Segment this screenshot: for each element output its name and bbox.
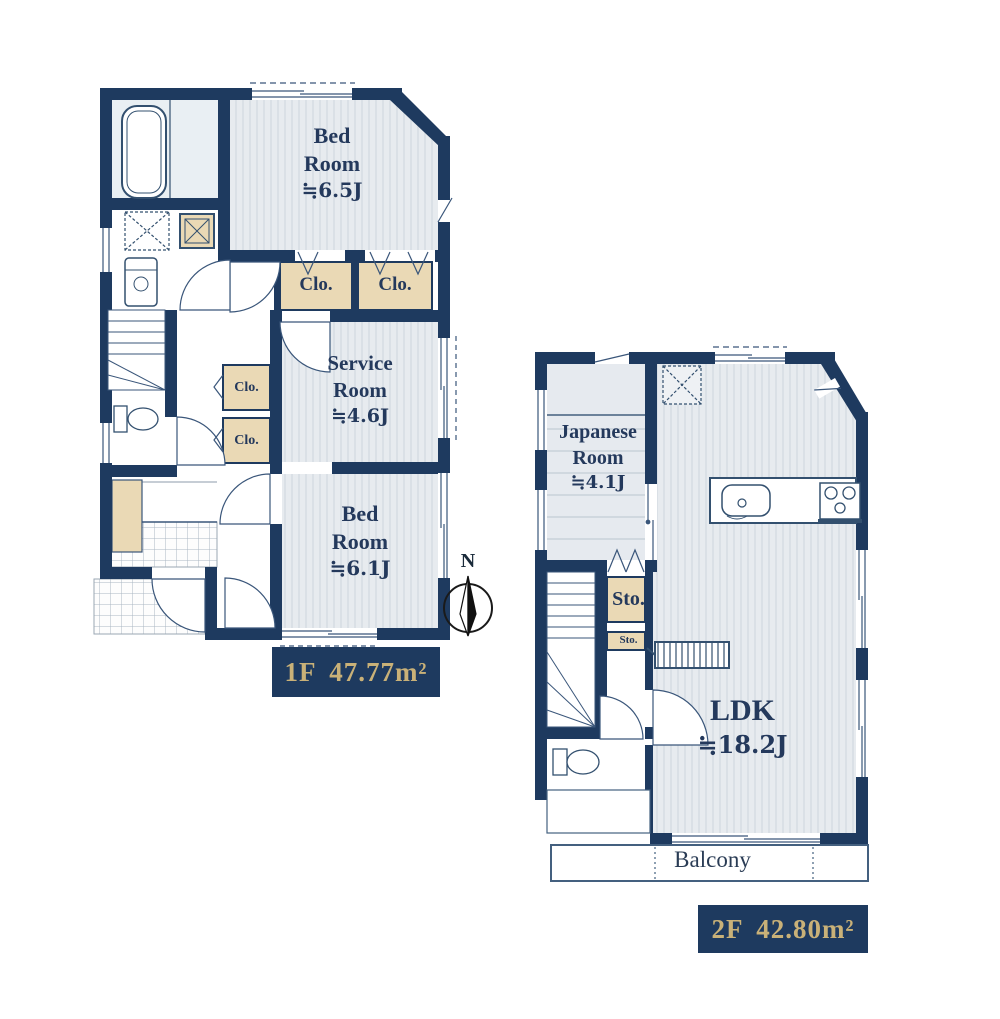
floor-hatch-icon	[180, 214, 214, 248]
room-size: ≒6.5J	[292, 178, 372, 204]
floor-plan-page: { "compass": { "north": "N" }, "floor1":…	[0, 0, 1000, 1019]
room-label-ldk: LDK ≒18.2J	[680, 692, 805, 761]
stairs-1f-icon	[108, 310, 165, 390]
room-size: ≒4.1J	[543, 471, 653, 494]
toilet-1f-icon	[114, 406, 158, 432]
toilet-2f-icon	[553, 749, 599, 775]
room-name: LDK	[710, 694, 775, 727]
room-label-japanese: Japanese Room ≒4.1J	[543, 420, 653, 494]
stairs-2f-icon	[547, 572, 595, 727]
room-label-service: Service Room ≒4.6J	[315, 350, 405, 428]
washer-pan-icon	[125, 212, 169, 250]
room-label-bedroom-6-1: Bed Room ≒6.1J	[320, 500, 400, 582]
room-name: Bed Room	[332, 501, 388, 554]
stair-railing-icon	[647, 642, 729, 668]
bathtub-icon	[122, 100, 170, 198]
room-size: ≒18.2J	[680, 730, 805, 761]
storage-label-2: Sto.	[605, 634, 652, 646]
closet-label-4: Clo.	[223, 433, 270, 449]
washbasin-icon	[125, 258, 157, 306]
area-label-1f: 1F 47.77m²	[272, 647, 440, 697]
kitchen-counter-icon	[710, 478, 862, 523]
balcony-label: Balcony	[645, 847, 780, 873]
room-name: Bed Room	[304, 123, 360, 176]
closet-label-1: Clo.	[280, 274, 352, 296]
area-label-2f: 2F 42.80m²	[698, 905, 868, 953]
room-name: Japanese Room	[559, 421, 637, 469]
closet-label-2: Clo.	[358, 274, 432, 296]
storage-label-1: Sto.	[605, 588, 652, 611]
ceiling-hatch-icon	[663, 366, 701, 404]
room-size: ≒6.1J	[320, 556, 400, 582]
room-label-bedroom-6-5: Bed Room ≒6.5J	[292, 122, 372, 204]
compass-icon	[435, 570, 501, 644]
room-size: ≒4.6J	[315, 404, 405, 428]
room-name: Service Room	[327, 351, 392, 402]
closet-label-3: Clo.	[223, 380, 270, 396]
